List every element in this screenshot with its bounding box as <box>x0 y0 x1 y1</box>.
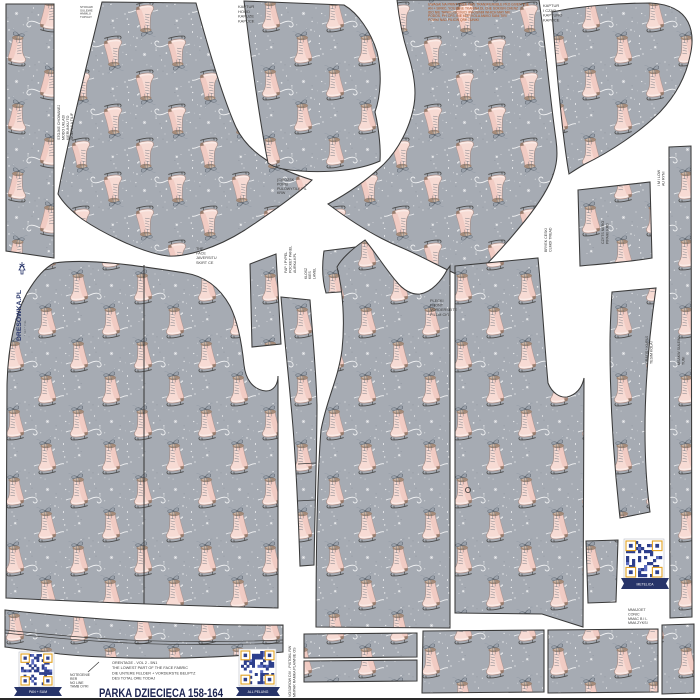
svg-text:VOSOROW DIV - PISTOKL RWMNPAR: VOSOROW DIV - PISTOKL RWMNPAR RAMKA PLAW… <box>288 645 296 697</box>
svg-text:MMAJOETCONICMMAC B I LMMA ZY: MMAJOETCONICMMAC B I LMMA ZYKSI <box>628 608 648 625</box>
svg-text:ALL PELUNG: ALL PELUNG <box>248 690 269 694</box>
svg-text:* NET * PIEL: * NET * PIEL <box>23 319 27 336</box>
svg-text:STOKAWSULEWEHMMLUTUPUAY: STOKAWSULEWEHMMLUTUPUAY <box>80 5 93 19</box>
svg-text:I M I LOWAU RYNI: I M I LOWAU RYNI <box>657 169 665 186</box>
svg-text:BRYEK CESKICLMOI TREAD: BRYEK CESKICLMOI TREAD <box>544 227 552 252</box>
svg-text:PAN + SUM: PAN + SUM <box>29 690 47 694</box>
svg-text:METELICA: METELICA <box>637 583 655 587</box>
svg-text:KAPTURHOODKAPUZEKAPUCE: KAPTURHOODKAPUZEKAPUCE <box>238 4 255 23</box>
svg-text:CZYTS NEROPIPAIKI KRD: CZYTS NEROPIPAIKI KRD <box>601 221 609 244</box>
svg-text:DRESÓWKA.PL: DRESÓWKA.PL <box>14 290 23 341</box>
